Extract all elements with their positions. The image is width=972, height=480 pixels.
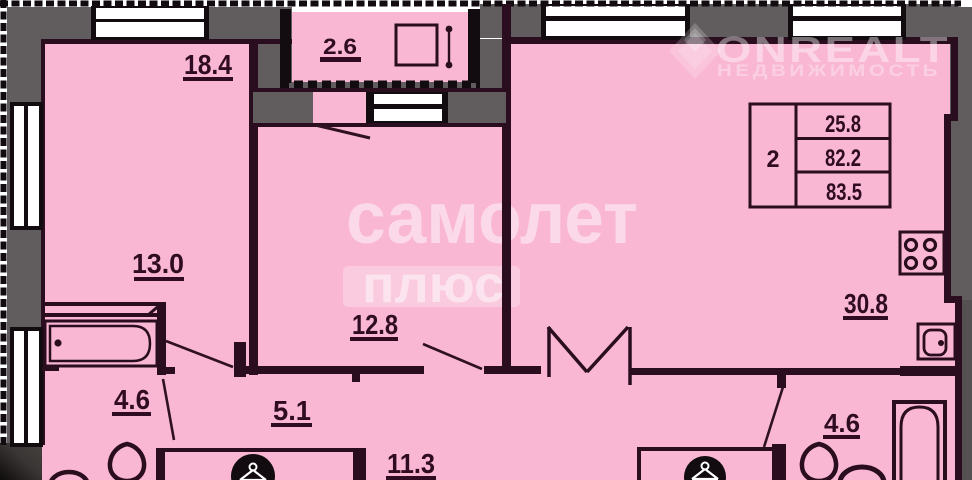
svg-text:82.2: 82.2: [825, 145, 861, 172]
svg-text:18.4: 18.4: [184, 49, 232, 80]
svg-text:НЕДВИЖИМОСТЬ: НЕДВИЖИМОСТЬ: [717, 61, 941, 80]
svg-text:4.6: 4.6: [114, 384, 150, 415]
svg-text:2: 2: [767, 146, 780, 173]
svg-text:12.8: 12.8: [352, 309, 398, 340]
svg-text:25.8: 25.8: [825, 111, 861, 138]
svg-text:4.6: 4.6: [824, 408, 860, 438]
svg-text:13.0: 13.0: [132, 248, 184, 279]
svg-text:плюс: плюс: [362, 256, 504, 314]
svg-text:30.8: 30.8: [844, 288, 888, 319]
svg-text:11.3: 11.3: [387, 448, 435, 479]
svg-text:2.6: 2.6: [323, 34, 357, 59]
svg-text:самолет: самолет: [346, 178, 638, 259]
svg-text:83.5: 83.5: [826, 179, 862, 206]
svg-text:5.1: 5.1: [273, 395, 311, 426]
